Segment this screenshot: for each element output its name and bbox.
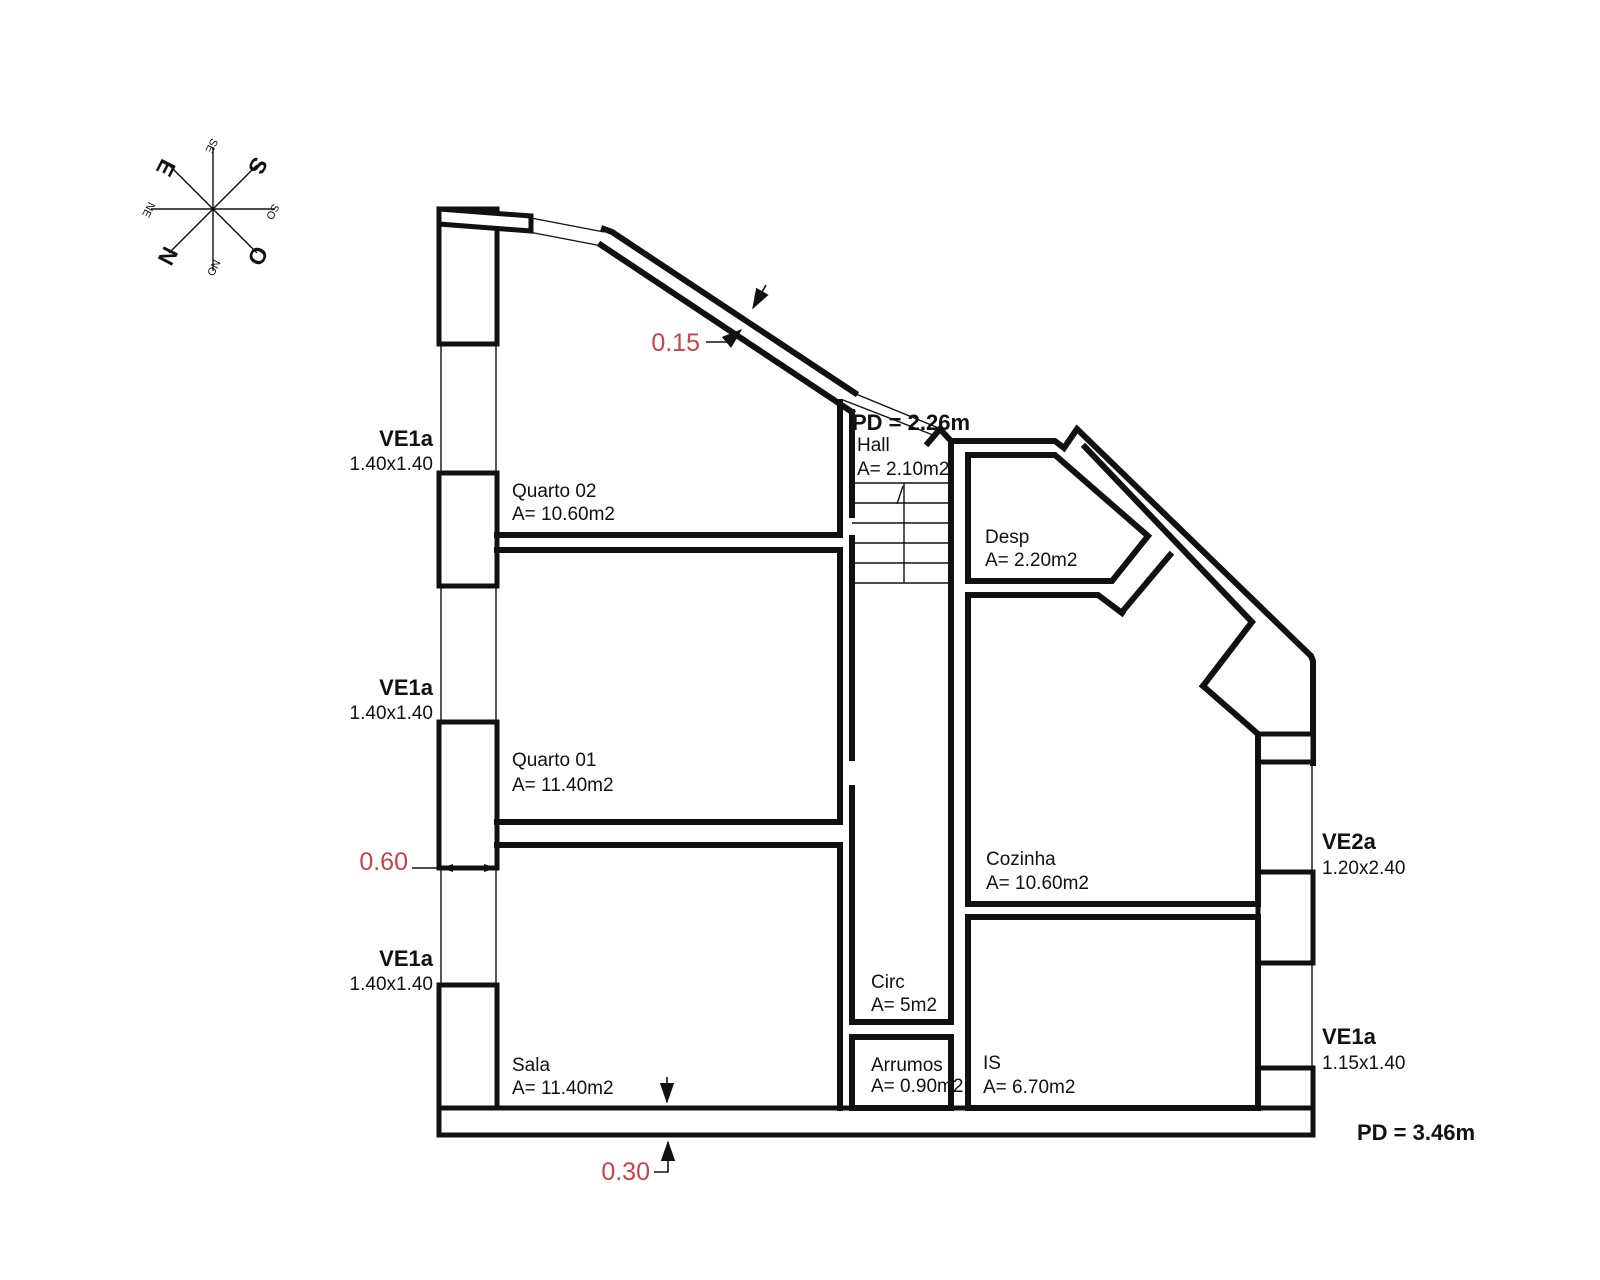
windows [441,218,1312,1068]
compass-label-se: SE [202,136,219,155]
room-label-desp: Desp [985,527,1029,548]
window-label-right2-size: 1.15x1.40 [1322,1053,1405,1074]
dimension-wall-diagonal: 0.15 [651,329,700,357]
stairs [852,483,951,583]
floor-plan-page: E S N O SE NE SO NO [0,0,1600,1280]
room-label-sala: Sala [512,1055,550,1076]
wall-bottom [439,1108,1313,1135]
compass-label-n: N [153,243,184,270]
window-label-left2-size: 1.40x1.40 [350,703,433,724]
wall-diagonal-outer [604,229,855,393]
compass-label-no: NO [204,257,222,278]
window-label-left3-code: VE1a [379,946,434,971]
room-label-cozinha: Cozinha [986,849,1056,870]
compass-label-ne: NE [139,200,157,219]
wall-right-pier-b [1258,872,1313,963]
window-label-left3-size: 1.40x1.40 [350,974,433,995]
window-label-left1-code: VE1a [379,426,434,451]
wall-right-a [1258,734,1313,762]
room-area-cozinha: A= 10.60m2 [986,873,1089,894]
compass-label-so: SO [263,202,281,222]
room-area-quarto01: A= 11.40m2 [512,775,614,796]
compass-label-e: E [151,155,181,180]
ceiling-height-main: PD = 3.46m [1357,1120,1475,1145]
window-top-inner [529,232,602,246]
room-label-arrumos: Arrumos [871,1055,943,1076]
dimension-annotations: 0.15 0.60 0.30 [359,285,766,1186]
window-label-right2-code: VE1a [1322,1024,1377,1049]
room-area-hall: A= 2.10m2 [857,459,949,480]
room-area-arrumos: A= 0.90m2 [871,1076,963,1097]
wall-pier-left-4 [439,985,497,1108]
room-label-circ: Circ [871,972,905,993]
window-top-outer [531,218,604,232]
room-area-quarto02: A= 10.60m2 [512,504,615,525]
window-label-right1-code: VE2a [1322,829,1377,854]
stairs-direction-tick [897,486,903,504]
room-label-hall: Hall [857,435,890,456]
dimension-wall-left: 0.60 [359,848,408,876]
room-label-quarto02: Quarto 02 [512,481,597,502]
dimension-wall-bottom: 0.30 [601,1158,650,1186]
room-label-quarto01: Quarto 01 [512,750,597,771]
wall-diagonal-inner [601,245,852,412]
room-label-is: IS [983,1053,1001,1074]
compass-rose: E S N O SE NE SO NO [139,136,281,278]
window-label-left2-code: VE1a [379,675,434,700]
room-area-is: A= 6.70m2 [983,1077,1075,1098]
wall-right-diagonal-inner [1085,447,1252,686]
window-label-left1-size: 1.40x1.40 [350,454,433,475]
room-area-desp: A= 2.20m2 [985,550,1077,571]
room-area-circ: A= 5m2 [871,995,937,1016]
floor-plan-drawing: E S N O SE NE SO NO [0,0,1600,1280]
ceiling-height-hall: PD = 2.26m [852,410,970,435]
wall-pier-left-2 [439,473,497,586]
window-label-right1-size: 1.20x2.40 [1322,858,1405,879]
room-area-sala: A= 11.40m2 [512,1078,614,1099]
wall-right-pier-c [1258,1068,1313,1108]
compass-label-o: O [242,242,273,270]
wall-pier-left-3 [439,722,497,868]
